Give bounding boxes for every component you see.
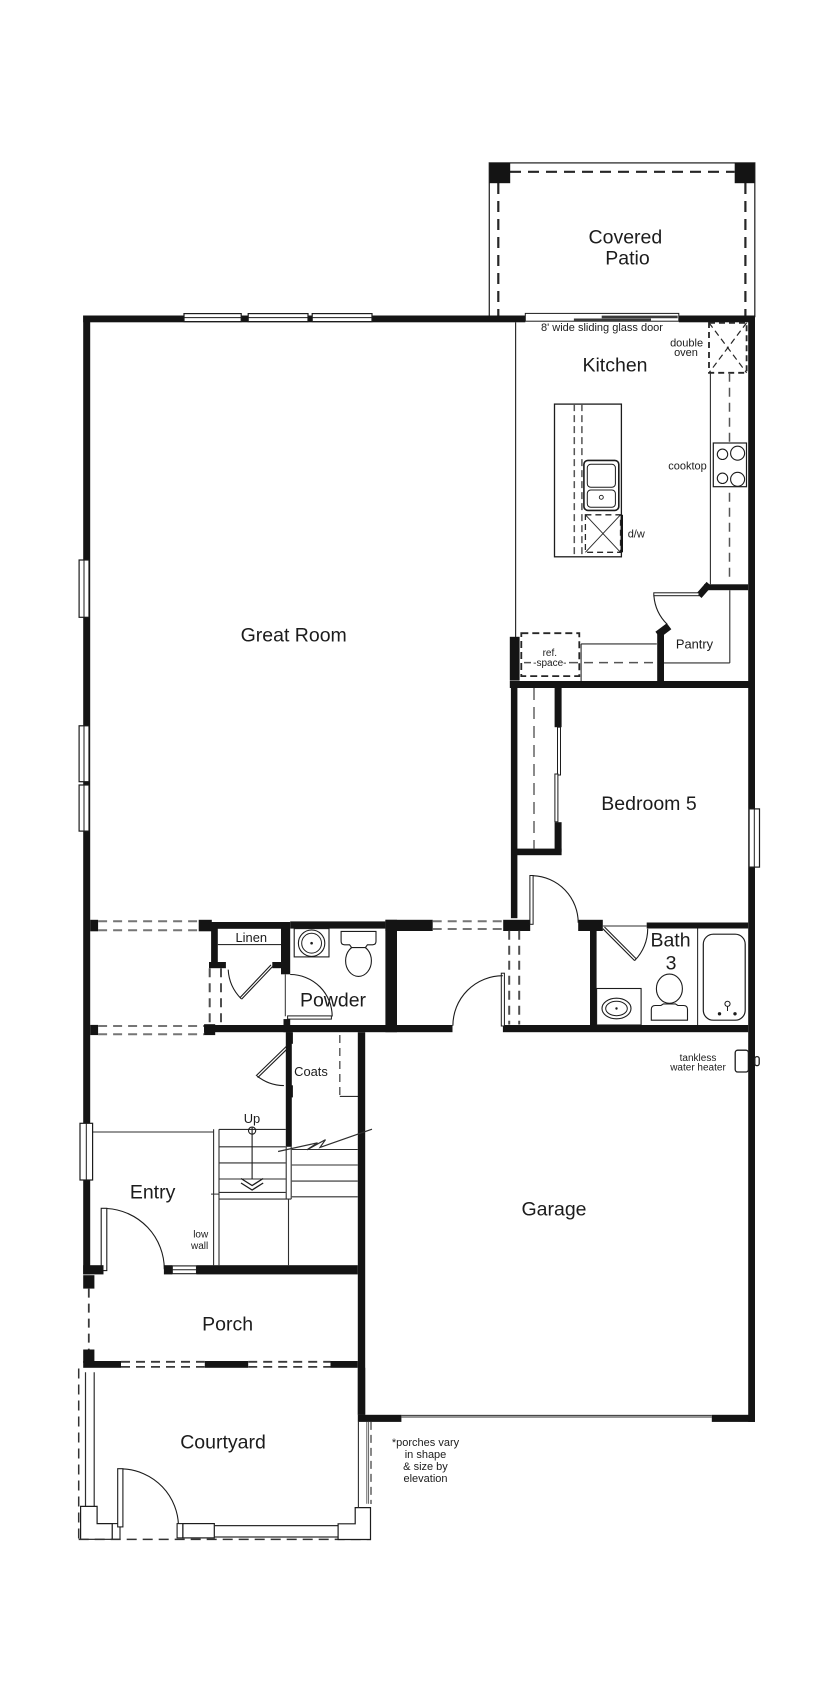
svg-text:Kitchen: Kitchen — [582, 355, 647, 377]
svg-text:3: 3 — [666, 952, 677, 974]
svg-text:8' wide sliding glass door: 8' wide sliding glass door — [541, 322, 663, 334]
svg-text:Coats: Coats — [294, 1064, 328, 1079]
svg-text:Powder: Powder — [300, 990, 367, 1012]
svg-text:Entry: Entry — [130, 1182, 176, 1204]
svg-text:cooktop: cooktop — [668, 461, 707, 473]
svg-text:Patio: Patio — [605, 248, 650, 270]
svg-text:water heater: water heater — [669, 1063, 726, 1074]
svg-text:elevation: elevation — [403, 1473, 447, 1485]
svg-text:Linen: Linen — [236, 930, 268, 945]
svg-text:wall: wall — [190, 1241, 208, 1252]
svg-text:Up: Up — [244, 1111, 260, 1126]
svg-text:Great Room: Great Room — [241, 625, 347, 647]
svg-text:Porch: Porch — [202, 1314, 253, 1336]
svg-text:d/w: d/w — [628, 529, 645, 541]
svg-text:low: low — [193, 1230, 209, 1241]
svg-text:Covered: Covered — [589, 226, 663, 248]
svg-text:& size by: & size by — [403, 1461, 448, 1473]
svg-text:Bath: Bath — [650, 930, 690, 952]
svg-text:Pantry: Pantry — [676, 636, 714, 651]
svg-text:in shape: in shape — [405, 1449, 447, 1461]
svg-text:Bedroom 5: Bedroom 5 — [601, 793, 697, 815]
svg-text:Garage: Garage — [521, 1199, 586, 1221]
svg-text:*porches vary: *porches vary — [392, 1437, 460, 1449]
svg-text:Courtyard: Courtyard — [180, 1432, 266, 1454]
svg-text:oven: oven — [674, 347, 698, 359]
svg-text:-space-: -space- — [533, 658, 566, 669]
